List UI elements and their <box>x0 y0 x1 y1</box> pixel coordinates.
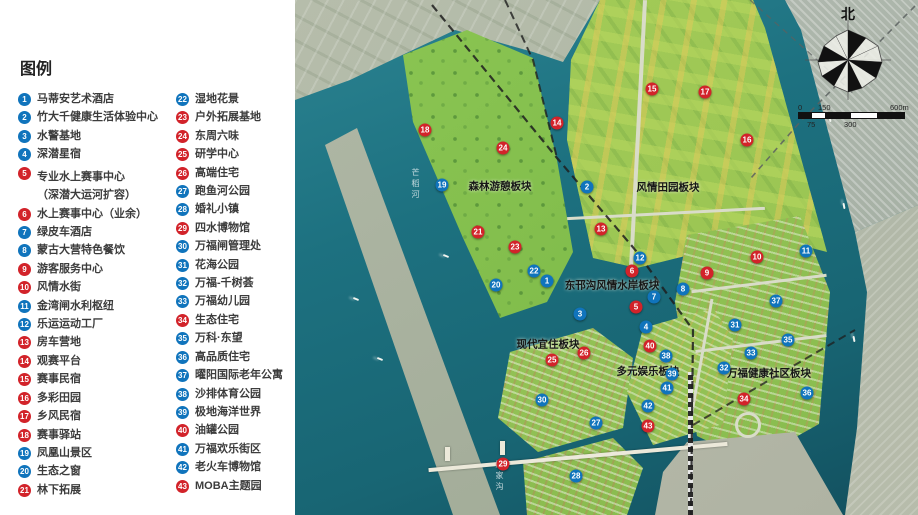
legend-item-label: 专业水上赛事中心 <box>37 171 125 183</box>
map-marker-27: 27 <box>590 417 603 430</box>
legend-title: 图例 <box>20 55 52 79</box>
map-marker-31: 31 <box>729 319 742 332</box>
map-marker-10: 10 <box>751 251 764 264</box>
bridge-pylon-1 <box>445 447 450 461</box>
legend-item-label: 跑鱼河公园 <box>195 185 250 198</box>
legend-item-label: 万福-千树荟 <box>195 277 254 290</box>
legend-item-label: 婚礼小镇 <box>195 203 239 216</box>
elevated-rail <box>688 372 693 515</box>
legend-item-number: 22 <box>176 93 189 106</box>
map-marker-42: 42 <box>642 400 655 413</box>
map-marker-9: 9 <box>701 267 714 280</box>
legend-item-43: 43MOBA主题园 <box>176 480 296 493</box>
legend-item-18: 18赛事驿站 <box>18 429 176 442</box>
legend-item-number: 20 <box>18 465 31 478</box>
block-label: 森林游憩板块 <box>469 179 532 194</box>
block-label: 万福健康社区板块 <box>727 366 811 381</box>
legend-item-number: 33 <box>176 295 189 308</box>
legend-item-41: 41万福欢乐街区 <box>176 443 296 456</box>
map-marker-29: 29 <box>497 458 510 471</box>
legend-item-label: 乐运运动工厂 <box>37 318 103 331</box>
legend-item-9: 9游客服务中心 <box>18 263 176 276</box>
map-marker-23: 23 <box>509 241 522 254</box>
legend-item-label: 户外拓展基地 <box>195 111 261 124</box>
legend-item-number: 10 <box>18 281 31 294</box>
planning-map: 北 0150600m <box>295 0 918 515</box>
legend-item-label: 游客服务中心 <box>37 263 103 276</box>
legend-item-42: 42老火车博物馆 <box>176 461 296 474</box>
legend-item-6: 6水上赛事中心（业余） <box>18 208 176 221</box>
legend-item-3: 3水警基地 <box>18 130 176 143</box>
map-marker-37: 37 <box>770 295 783 308</box>
legend-item-label: 万福欢乐街区 <box>195 443 261 456</box>
map-marker-11: 11 <box>800 245 813 258</box>
legend-item-number: 42 <box>176 461 189 474</box>
map-marker-12: 12 <box>634 252 647 265</box>
legend-item-number: 39 <box>176 406 189 419</box>
legend-panel: 图例 1马蒂安艺术酒店2竹大千健康生活体验中心3水警基地4深潜星宿5专业水上赛事… <box>0 0 295 515</box>
map-marker-5: 5 <box>630 301 643 314</box>
scale-label: 150 <box>818 103 831 112</box>
legend-item-number: 24 <box>176 130 189 143</box>
legend-item-number: 23 <box>176 111 189 124</box>
legend-column-2: 22湿地花景23户外拓展基地24东周六味25研学中心26高端住宅27跑鱼河公园2… <box>176 93 296 498</box>
map-marker-40: 40 <box>644 340 657 353</box>
legend-item-number: 16 <box>18 392 31 405</box>
legend-item-32: 32万福-千树荟 <box>176 277 296 290</box>
legend-item-26: 26高端住宅 <box>176 167 296 180</box>
map-marker-24: 24 <box>497 142 510 155</box>
interchange-loop <box>735 412 761 438</box>
map-marker-14: 14 <box>551 117 564 130</box>
map-marker-33: 33 <box>745 347 758 360</box>
legend-item-label: 水警基地 <box>37 130 81 143</box>
legend-item-29: 29四水博物馆 <box>176 222 296 235</box>
legend-item-2: 2竹大千健康生活体验中心 <box>18 111 176 124</box>
boat <box>852 336 855 342</box>
planning-map-page: 图例 1马蒂安艺术酒店2竹大千健康生活体验中心3水警基地4深潜星宿5专业水上赛事… <box>0 0 918 515</box>
legend-item-number: 34 <box>176 314 189 327</box>
map-marker-2: 2 <box>581 181 594 194</box>
legend-item-28: 28婚礼小镇 <box>176 203 296 216</box>
legend-item-4: 4深潜星宿 <box>18 148 176 161</box>
legend-item-5: 5专业水上赛事中心（深潜大运河扩容） <box>18 167 176 203</box>
compass-rose-icon <box>795 18 901 102</box>
boat <box>377 357 383 361</box>
scale-label: 0 <box>798 103 802 112</box>
map-marker-43: 43 <box>642 420 655 433</box>
legend-item-19: 19凤凰山景区 <box>18 447 176 460</box>
legend-item-number: 35 <box>176 332 189 345</box>
legend-item-number: 36 <box>176 351 189 364</box>
legend-item-label: 生态之窗 <box>37 465 81 478</box>
map-marker-16: 16 <box>741 134 754 147</box>
legend-item-label: 曜阳国际老年公寓 <box>195 369 283 382</box>
legend-item-label: 极地海洋世界 <box>195 406 261 419</box>
map-marker-34: 34 <box>738 393 751 406</box>
scale-bottom-labels: 75300 <box>798 119 908 128</box>
legend-item-15: 15赛事民宿 <box>18 373 176 386</box>
legend-item-number: 15 <box>18 373 31 386</box>
legend-item-number: 43 <box>176 480 189 493</box>
legend-item-7: 7绿皮车酒店 <box>18 226 176 239</box>
legend-item-25: 25研学中心 <box>176 148 296 161</box>
legend-item-22: 22湿地花景 <box>176 93 296 106</box>
scale-top-labels: 0150600m <box>798 103 908 112</box>
legend-item-label: 林下拓展 <box>37 484 81 497</box>
scale-label: 600m <box>890 103 909 112</box>
legend-item-label: 老火车博物馆 <box>195 461 261 474</box>
boat <box>443 254 449 258</box>
legend-item-label: 蒙古大营特色餐饮 <box>37 244 125 257</box>
legend-item-10: 10风情水街 <box>18 281 176 294</box>
legend-item-number: 38 <box>176 388 189 401</box>
map-marker-6: 6 <box>626 265 639 278</box>
legend-item-label: 赛事民宿 <box>37 373 81 386</box>
legend-item-number: 28 <box>176 203 189 216</box>
block-label: 风情田园板块 <box>637 180 700 195</box>
legend-item-38: 38沙排体育公园 <box>176 388 296 401</box>
legend-item-16: 16多彩田园 <box>18 392 176 405</box>
map-marker-21: 21 <box>472 226 485 239</box>
map-marker-32: 32 <box>718 362 731 375</box>
map-marker-38: 38 <box>660 350 673 363</box>
legend-item-label: 油罐公园 <box>195 424 239 437</box>
legend-item-label: 多彩田园 <box>37 392 81 405</box>
legend-item-number: 21 <box>18 484 31 497</box>
legend-item-17: 17乡风民宿 <box>18 410 176 423</box>
legend-item-number: 19 <box>18 447 31 460</box>
map-marker-7: 7 <box>648 291 661 304</box>
legend-item-number: 14 <box>18 355 31 368</box>
legend-item-12: 12乐运运动工厂 <box>18 318 176 331</box>
legend-item-number: 41 <box>176 443 189 456</box>
legend-item-sublabel: （深潜大运河扩容） <box>37 189 136 201</box>
river-label: 芒稻河 <box>410 168 421 201</box>
legend-item-number: 26 <box>176 167 189 180</box>
legend-item-14: 14观赛平台 <box>18 355 176 368</box>
boat <box>353 297 359 301</box>
legend-item-number: 13 <box>18 336 31 349</box>
boat <box>842 203 845 209</box>
map-marker-35: 35 <box>782 334 795 347</box>
legend-item-33: 33万福幼儿园 <box>176 295 296 308</box>
legend-item-label: 房车营地 <box>37 336 81 349</box>
map-marker-15: 15 <box>646 83 659 96</box>
legend-item-label: 研学中心 <box>195 148 239 161</box>
map-marker-28: 28 <box>570 470 583 483</box>
map-marker-20: 20 <box>490 279 503 292</box>
legend-item-20: 20生态之窗 <box>18 465 176 478</box>
legend-item-1: 1马蒂安艺术酒店 <box>18 93 176 106</box>
legend-item-30: 30万福闸管理处 <box>176 240 296 253</box>
legend-item-label: 东周六味 <box>195 130 239 143</box>
legend-item-label: 凤凰山景区 <box>37 447 92 460</box>
legend-item-label: 赛事驿站 <box>37 429 81 442</box>
legend-item-number: 30 <box>176 240 189 253</box>
legend-item-label: 金湾闸水利枢纽 <box>37 300 114 313</box>
legend-item-number: 2 <box>18 111 31 124</box>
legend-item-21: 21林下拓展 <box>18 484 176 497</box>
legend-item-34: 34生态住宅 <box>176 314 296 327</box>
legend-item-8: 8蒙古大营特色餐饮 <box>18 244 176 257</box>
map-marker-1: 1 <box>541 275 554 288</box>
legend-item-number: 9 <box>18 263 31 276</box>
legend-item-label: 观赛平台 <box>37 355 81 368</box>
legend-item-label: 四水博物馆 <box>195 222 250 235</box>
block-label: 东邗沟风情水岸板块 <box>565 278 660 293</box>
legend-item-number: 27 <box>176 185 189 198</box>
legend-item-label: 风情水街 <box>37 281 81 294</box>
map-marker-18: 18 <box>419 124 432 137</box>
scale-bar-segments <box>798 112 905 119</box>
scale-label: 75 <box>807 120 815 129</box>
legend-item-label: 万福闸管理处 <box>195 240 261 253</box>
legend-item-40: 40油罐公园 <box>176 424 296 437</box>
legend-item-label: 万福幼儿园 <box>195 295 250 308</box>
map-marker-19: 19 <box>436 179 449 192</box>
legend-item-number: 1 <box>18 93 31 106</box>
legend-item-label: 深潜星宿 <box>37 148 81 161</box>
legend-item-37: 37曜阳国际老年公寓 <box>176 369 296 382</box>
legend-item-number: 37 <box>176 369 189 382</box>
legend-item-label: 水上赛事中心（业余） <box>37 208 147 221</box>
legend-item-number: 17 <box>18 410 31 423</box>
legend-item-label: MOBA主题园 <box>195 480 262 493</box>
map-marker-17: 17 <box>699 86 712 99</box>
legend-item-label: 花海公园 <box>195 259 239 272</box>
legend-item-number: 6 <box>18 208 31 221</box>
legend-item-number: 7 <box>18 226 31 239</box>
map-marker-4: 4 <box>640 321 653 334</box>
map-marker-8: 8 <box>677 283 690 296</box>
legend-column-1: 1马蒂安艺术酒店2竹大千健康生活体验中心3水警基地4深潜星宿5专业水上赛事中心（… <box>18 93 176 502</box>
bridge-pylon-2 <box>500 441 505 455</box>
legend-item-31: 31花海公园 <box>176 259 296 272</box>
map-marker-25: 25 <box>546 354 559 367</box>
legend-item-number: 3 <box>18 130 31 143</box>
map-marker-13: 13 <box>595 223 608 236</box>
legend-item-number: 18 <box>18 429 31 442</box>
map-marker-36: 36 <box>801 387 814 400</box>
legend-item-number: 11 <box>18 300 31 313</box>
block-label: 现代宜住板块 <box>517 337 580 352</box>
legend-item-13: 13房车营地 <box>18 336 176 349</box>
legend-item-39: 39极地海洋世界 <box>176 406 296 419</box>
legend-item-label: 绿皮车酒店 <box>37 226 92 239</box>
legend-item-35: 35万科·东望 <box>176 332 296 345</box>
legend-item-label: 乡风民宿 <box>37 410 81 423</box>
legend-item-number: 4 <box>18 148 31 161</box>
legend-item-label: 高品质住宅 <box>195 351 250 364</box>
scale-label: 300 <box>844 120 857 129</box>
legend-item-label: 湿地花景 <box>195 93 239 106</box>
legend-item-label: 高端住宅 <box>195 167 239 180</box>
map-marker-41: 41 <box>661 382 674 395</box>
legend-item-number: 31 <box>176 259 189 272</box>
legend-item-label: 生态住宅 <box>195 314 239 327</box>
legend-item-number: 40 <box>176 424 189 437</box>
map-marker-3: 3 <box>574 308 587 321</box>
legend-item-number: 29 <box>176 222 189 235</box>
legend-item-number: 5 <box>18 167 31 180</box>
legend-item-number: 8 <box>18 244 31 257</box>
legend-item-number: 32 <box>176 277 189 290</box>
legend-item-label: 马蒂安艺术酒店 <box>37 93 114 106</box>
legend-item-11: 11金湾闸水利枢纽 <box>18 300 176 313</box>
scale-bar: 0150600m 75300 <box>798 103 908 128</box>
legend-item-number: 25 <box>176 148 189 161</box>
map-marker-22: 22 <box>528 265 541 278</box>
map-marker-30: 30 <box>536 394 549 407</box>
legend-item-24: 24东周六味 <box>176 130 296 143</box>
legend-item-label: 万科·东望 <box>195 332 243 345</box>
map-marker-26: 26 <box>578 347 591 360</box>
legend-item-number: 12 <box>18 318 31 331</box>
legend-item-label: 竹大千健康生活体验中心 <box>37 111 158 124</box>
legend-item-27: 27跑鱼河公园 <box>176 185 296 198</box>
legend-item-36: 36高品质住宅 <box>176 351 296 364</box>
map-marker-39: 39 <box>666 368 679 381</box>
legend-item-23: 23户外拓展基地 <box>176 111 296 124</box>
legend-item-label: 沙排体育公园 <box>195 388 261 401</box>
